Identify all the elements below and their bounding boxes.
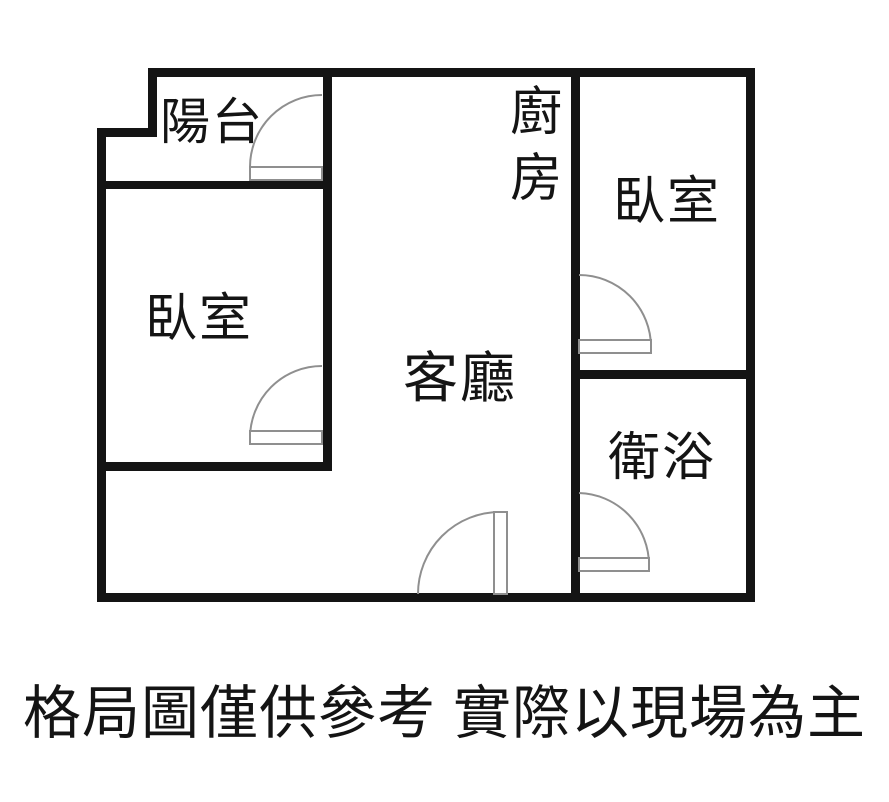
wall-bathroom-divider bbox=[571, 370, 755, 379]
wall-inner-left-vertical bbox=[323, 68, 332, 471]
wall-notch-horizontal bbox=[97, 128, 157, 137]
door-bedroom-left-arc bbox=[250, 366, 322, 438]
door-bedroom-left-leaf bbox=[250, 431, 322, 444]
door-bathroom bbox=[579, 493, 649, 571]
door-bedroom-right-arc bbox=[579, 275, 651, 347]
disclaimer-caption: 格局圖僅供參考 實際以現場為主 bbox=[0, 666, 889, 750]
room-label-balcony: 陽台 bbox=[160, 96, 264, 149]
wall-outer-right bbox=[746, 68, 755, 602]
door-bedroom-right-leaf bbox=[579, 340, 651, 353]
wall-outer-top bbox=[148, 68, 755, 77]
room-label-bedroom-right: 臥室 bbox=[613, 175, 721, 230]
room-label-living-room: 客廳 bbox=[403, 350, 517, 408]
room-label-bedroom-left: 臥室 bbox=[145, 292, 253, 347]
door-bathroom-leaf bbox=[579, 558, 649, 571]
door-bedroom-left bbox=[250, 366, 322, 444]
door-living-entry bbox=[418, 512, 507, 594]
room-label-bathroom: 衛浴 bbox=[608, 431, 716, 486]
wall-outer-bottom bbox=[97, 593, 755, 602]
wall-balcony-bottom bbox=[97, 181, 332, 189]
wall-inner-right-vertical bbox=[571, 68, 580, 602]
floor-plan-page: 陽台 廚房 臥室 臥室 客廳 衛浴 格局圖僅供參考 實際以現場為主 bbox=[0, 0, 889, 802]
wall-notch-vertical bbox=[148, 68, 157, 136]
door-living-entry-arc bbox=[418, 512, 500, 594]
wall-bedroom-left-bottom bbox=[97, 462, 332, 471]
room-label-kitchen: 廚房 bbox=[503, 84, 558, 216]
door-bedroom-right bbox=[579, 275, 651, 353]
door-bathroom-arc bbox=[579, 493, 649, 565]
door-balcony-leaf bbox=[250, 167, 322, 180]
door-living-entry-leaf bbox=[494, 512, 507, 594]
wall-outer-left bbox=[97, 128, 106, 602]
door-symbols bbox=[250, 95, 651, 594]
